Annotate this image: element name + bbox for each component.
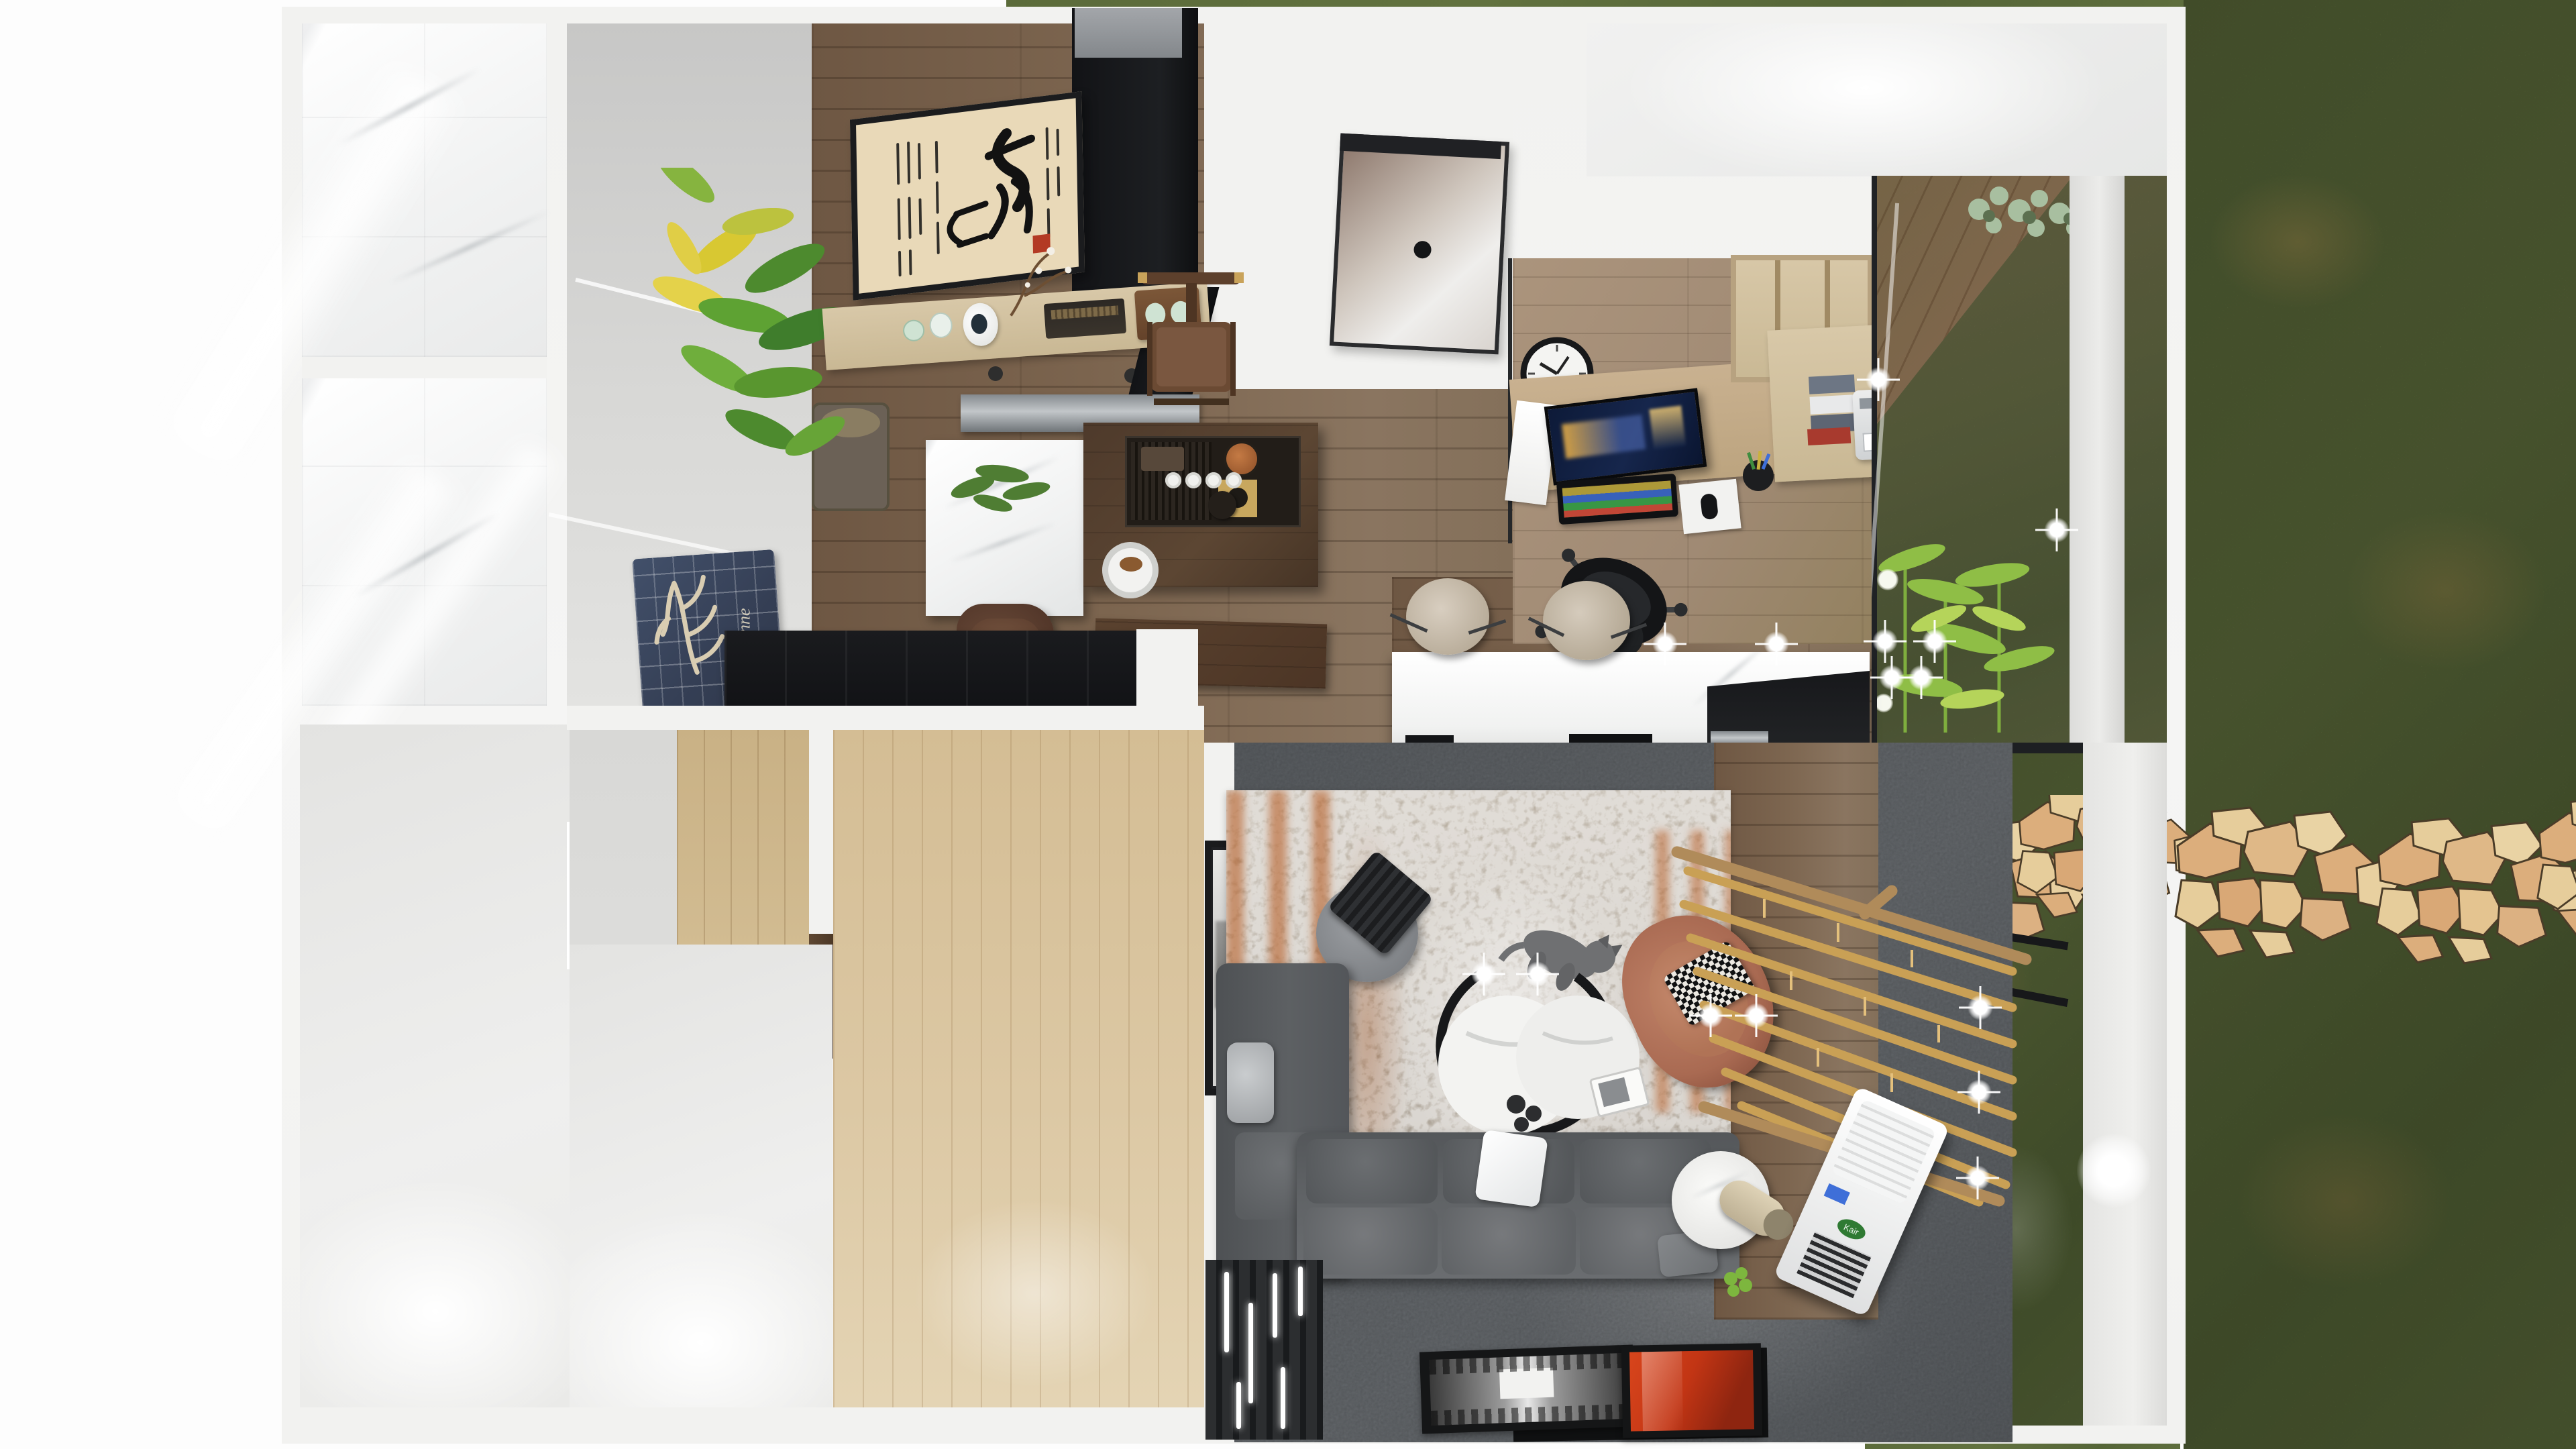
snack-plate bbox=[1102, 542, 1159, 598]
mouse-pad bbox=[1678, 479, 1741, 535]
ceiling-spotlight bbox=[1741, 1001, 1771, 1030]
ceiling-spotlight bbox=[1650, 629, 1680, 659]
ceiling-spotlight bbox=[1469, 959, 1499, 989]
ac-brand-text: Kair bbox=[1842, 1222, 1860, 1237]
copper-plate bbox=[1226, 443, 1257, 474]
teapot bbox=[1208, 491, 1236, 519]
red-binder bbox=[1807, 427, 1851, 445]
ceiling-spotlight bbox=[1920, 627, 1949, 656]
atrium-pillar-wall bbox=[2070, 176, 2125, 743]
bright-room bbox=[1587, 23, 2167, 176]
courtyard-outer-wall bbox=[2083, 743, 2167, 1426]
ceiling-spotlight bbox=[1762, 629, 1791, 659]
ming-chair bbox=[1134, 267, 1248, 415]
lawn bbox=[2184, 0, 2576, 1449]
ceiling-spotlight bbox=[1964, 1077, 1994, 1107]
tea-cups bbox=[1165, 472, 1246, 491]
floor-socket bbox=[988, 366, 1003, 381]
sphere-lamp bbox=[2077, 1134, 2151, 1207]
glass-frame-edge bbox=[1872, 176, 1877, 743]
hood-cap bbox=[1075, 8, 1182, 58]
celadon-vase bbox=[902, 319, 925, 342]
empty-room bbox=[300, 724, 572, 1407]
pen-cup bbox=[1743, 460, 1774, 491]
side-plant bbox=[1715, 1258, 1762, 1305]
bedroom-north-wall bbox=[567, 706, 1204, 730]
bar-stool bbox=[1543, 581, 1630, 664]
entry-door-panel bbox=[1330, 133, 1509, 355]
bathroom-divider-wall bbox=[302, 357, 547, 378]
ceiling-spotlight bbox=[1963, 1163, 1992, 1193]
ivy-plant bbox=[1898, 176, 2167, 297]
scene: Anne 茶道 bbox=[0, 0, 2576, 1449]
ceiling-spotlight bbox=[1864, 365, 1893, 394]
red-panel bbox=[1621, 1343, 1762, 1438]
bedroom-wall-mass bbox=[570, 945, 833, 1407]
tv-slat-wall bbox=[1205, 1260, 1323, 1440]
ceiling-spotlight bbox=[1966, 993, 1995, 1022]
tea-tool-box bbox=[1141, 447, 1184, 471]
shower-room bbox=[302, 378, 547, 706]
bedroom-floor bbox=[833, 730, 1204, 1407]
door-handle-icon bbox=[1413, 241, 1432, 259]
rgb-keyboard bbox=[1556, 474, 1678, 525]
binders bbox=[1809, 374, 1855, 394]
wardrobe bbox=[724, 631, 1136, 706]
corridor-artwork bbox=[1419, 1344, 1635, 1434]
tea-table bbox=[1083, 423, 1318, 587]
sectional-sofa bbox=[1216, 963, 1739, 1279]
bar-stool bbox=[1406, 578, 1489, 659]
mouse-icon bbox=[1700, 493, 1719, 520]
chaise-pillow bbox=[1227, 1042, 1274, 1123]
ceiling-spotlight bbox=[1523, 959, 1552, 989]
lawn-flagstone-path bbox=[2173, 792, 2576, 1053]
deck-light bbox=[1877, 569, 1898, 590]
bathroom bbox=[302, 23, 547, 357]
atrium bbox=[1872, 176, 2167, 743]
bedroom-floor-a bbox=[677, 730, 809, 951]
island-greenery bbox=[946, 447, 1060, 521]
bonsai-tray bbox=[1044, 299, 1126, 339]
white-pillow bbox=[1474, 1130, 1548, 1207]
ceiling-spotlight bbox=[1870, 627, 1900, 656]
celadon-vase bbox=[928, 312, 953, 339]
marble-island bbox=[926, 440, 1083, 616]
ceiling-spotlight bbox=[1696, 1001, 1725, 1030]
ceiling-spotlight bbox=[1907, 663, 1936, 692]
ceiling-spotlight bbox=[2042, 515, 2072, 545]
